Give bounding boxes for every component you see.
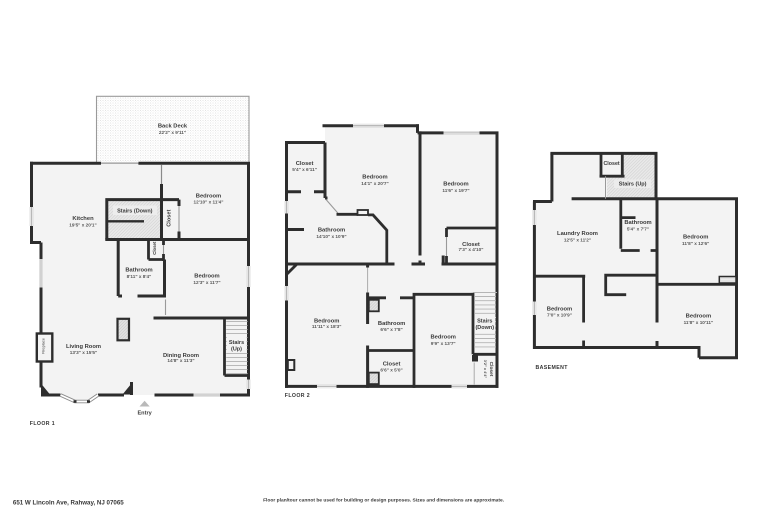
svg-text:Stairs (Down): Stairs (Down) [117,209,153,215]
svg-text:Floor plan/tour cannot be used: Floor plan/tour cannot be used for build… [263,498,505,504]
svg-text:9'9" x 13'7": 9'9" x 13'7" [431,341,456,346]
svg-text:(Up): (Up) [231,347,242,353]
svg-text:Closet: Closet [296,161,314,167]
svg-text:Kitchen: Kitchen [72,216,94,222]
svg-text:Stairs: Stairs [477,319,492,325]
svg-text:Bathroom: Bathroom [318,228,345,234]
svg-text:Entry: Entry [137,411,152,417]
svg-text:Bathroom: Bathroom [378,321,405,327]
svg-text:Stairs (Up): Stairs (Up) [619,182,647,188]
svg-text:5'4" x 7'7": 5'4" x 7'7" [627,226,649,231]
svg-text:11'6" x 19'7": 11'6" x 19'7" [442,188,469,193]
svg-text:14'8" x 11'3": 14'8" x 11'3" [167,358,194,363]
svg-text:Stairs: Stairs [229,340,244,346]
svg-text:FLOOR 2: FLOOR 2 [285,393,310,399]
svg-text:22'2" x 9'11": 22'2" x 9'11" [159,130,186,135]
svg-text:Closet: Closet [603,161,619,167]
svg-text:Bedroom: Bedroom [547,306,572,312]
svg-text:Bedroom: Bedroom [362,175,387,181]
svg-text:Bedroom: Bedroom [430,334,455,340]
svg-text:5'4" x 6'11": 5'4" x 6'11" [292,167,317,172]
svg-text:3'2" x 4'4": 3'2" x 4'4" [483,360,488,379]
svg-text:Bathroom: Bathroom [125,268,152,274]
svg-text:Bedroom: Bedroom [686,313,711,319]
svg-text:7'3" x 4'10": 7'3" x 4'10" [459,247,484,252]
svg-text:12'10" x 11'4": 12'10" x 11'4" [194,199,224,204]
svg-text:8'11" x 8'4": 8'11" x 8'4" [127,274,152,279]
svg-text:Bedroom: Bedroom [443,182,468,188]
svg-text:6'6" x 5'0": 6'6" x 5'0" [380,368,402,373]
svg-text:Closet: Closet [167,210,173,227]
svg-text:Fireplace: Fireplace [41,338,46,354]
svg-text:Back Deck: Back Deck [158,124,188,130]
svg-text:12'5" x 11'2": 12'5" x 11'2" [564,238,591,243]
svg-text:(Down): (Down) [475,325,494,331]
svg-text:13'3" x 15'5": 13'3" x 15'5" [70,350,98,355]
svg-text:BASEMENT: BASEMENT [536,365,569,371]
svg-text:Bathroom: Bathroom [624,220,651,226]
svg-text:7'0" x 10'9": 7'0" x 10'9" [547,313,572,318]
svg-text:11'8" x 12'6": 11'8" x 12'6" [682,241,709,246]
svg-text:651 W Lincoln Ave, Rahway, NJ: 651 W Lincoln Ave, Rahway, NJ 07065 [13,500,124,507]
svg-text:6'6" x 7'8": 6'6" x 7'8" [380,327,402,332]
svg-text:14'1" x 20'7": 14'1" x 20'7" [361,181,389,186]
svg-text:Closet: Closet [152,241,157,255]
svg-text:11'8" x 10'11": 11'8" x 10'11" [684,320,714,325]
svg-text:11'11" x 18'3": 11'11" x 18'3" [312,324,342,329]
svg-text:19'5" x 20'1": 19'5" x 20'1" [69,223,97,228]
svg-text:Laundry Room: Laundry Room [557,231,598,237]
svg-text:FLOOR 1: FLOOR 1 [30,421,55,427]
svg-text:Bedroom: Bedroom [194,274,219,280]
svg-text:14'10" x 10'9": 14'10" x 10'9" [316,234,346,239]
svg-text:Bedroom: Bedroom [683,235,708,241]
svg-text:12'3" x 11'7": 12'3" x 11'7" [193,280,220,285]
svg-text:Closet: Closet [383,361,401,367]
